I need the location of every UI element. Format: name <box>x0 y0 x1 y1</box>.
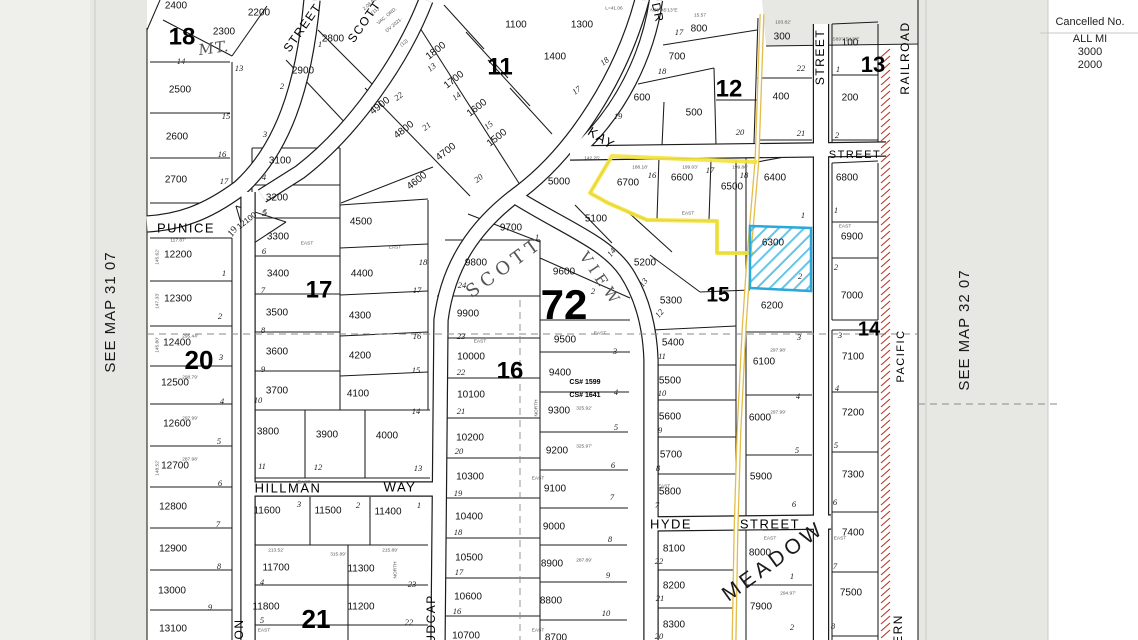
railroad-hatch-tick <box>881 581 890 589</box>
railroad-hatch-tick <box>881 399 890 407</box>
lot-number-label: 22 <box>655 556 664 566</box>
railroad-hatch-tick <box>881 273 890 281</box>
dimension-label: EAST <box>298 479 311 485</box>
railroad-hatch-tick <box>881 287 890 295</box>
lot-number-label: 13 <box>414 463 423 473</box>
parcel-number-label: 11300 <box>347 564 375 575</box>
parcel-number-label: 6900 <box>841 232 864 243</box>
street-name-label: STREET <box>829 149 881 161</box>
dimension-label: 147.33' <box>154 293 160 309</box>
dimension-label: 193.82' <box>775 19 791 25</box>
parcel-line <box>657 157 659 219</box>
dimension-label: S89°15'12"E <box>833 36 860 42</box>
parcel-number-label: 12300 <box>164 294 192 305</box>
dimension-label: 188.18' <box>632 164 648 170</box>
parcel-number-label: 10700 <box>452 631 480 640</box>
parcel-number-label: 12200 <box>164 250 192 261</box>
lot-number-label: 21 <box>420 120 433 133</box>
parcel-number-label: 12400 <box>163 338 191 349</box>
parcel-number-label: 12800 <box>159 502 187 513</box>
block-number-label: 20 <box>185 345 214 375</box>
railroad-hatch-tick <box>881 476 890 484</box>
parcel-number-label: 8100 <box>663 544 686 555</box>
lot-number-label: 21 <box>656 593 665 603</box>
parcel-number-label: 3100 <box>269 156 292 167</box>
lot-number-label: 21 <box>797 128 806 138</box>
lot-number-label: 23 <box>457 331 466 341</box>
lot-number-label: 17 <box>413 285 422 295</box>
dimension-label: EAST <box>834 535 847 541</box>
railroad-hatch-tick <box>881 266 890 274</box>
railroad-hatch-tick <box>881 238 890 246</box>
block-number-label: 21 <box>302 604 331 634</box>
highlighted-parcel-6300 <box>750 226 811 291</box>
lot-number-label: 20 <box>472 171 485 185</box>
railroad-hatch-tick <box>881 343 890 351</box>
parcel-number-label: 9800 <box>465 258 488 269</box>
lot-number-label: 3 <box>296 499 301 509</box>
cancelled-line: 2000 <box>1042 59 1138 72</box>
parcel-number-label: 6200 <box>761 301 784 312</box>
lot-number-label: 14 <box>412 406 421 416</box>
parcel-number-label: 7300 <box>842 470 865 481</box>
railroad-hatch-tick <box>881 448 890 456</box>
lot-number-label: 16 <box>218 149 227 159</box>
parcel-number-label: 5400 <box>662 338 685 349</box>
railroad-hatch-tick <box>881 497 890 505</box>
dimension-label: 199.86' <box>732 164 748 170</box>
railroad-hatch-tick <box>881 350 890 358</box>
dimension-label: 287.98' <box>182 456 198 462</box>
parcel-number-label: 1100 <box>505 20 527 31</box>
parcel-number-label: 9100 <box>544 484 567 495</box>
lot-number-label: 15 <box>482 119 495 132</box>
railroad-hatch-tick <box>881 539 890 547</box>
parcel-line <box>340 244 428 248</box>
dimension-label: EAST <box>682 210 695 216</box>
railroad-hatch-tick <box>881 483 890 491</box>
dimension-label: 145.62' <box>154 249 160 265</box>
parcel-number-label: 3800 <box>257 427 280 438</box>
parcel-number-label: 7500 <box>840 588 863 599</box>
parcel-number-label: 3300 <box>267 232 290 243</box>
dimension-label: 213.52' <box>268 547 284 553</box>
dimension-label: 199.03' <box>682 164 698 170</box>
railroad-hatch-tick <box>881 364 890 372</box>
dimension-label: N89°45'13"E <box>650 7 677 13</box>
lot-number-label: 18 <box>454 527 463 537</box>
lot-number-label: 18 <box>658 66 667 76</box>
lot-number-label: 2 <box>790 622 795 632</box>
railroad-hatch-tick <box>881 504 890 512</box>
railroad-hatch-tick <box>881 630 890 638</box>
left-margin-outer <box>0 0 90 640</box>
lot-number-label: 8 <box>261 325 266 335</box>
parcel-number-label: 7000 <box>841 291 864 302</box>
dimension-label: EAST <box>532 627 545 633</box>
parcel-number-label: 5200 <box>634 258 657 269</box>
railroad-hatch-tick <box>881 462 890 470</box>
railroad-hatch-tick <box>881 301 890 309</box>
parcel-number-label: 10300 <box>456 472 484 483</box>
parcel-line <box>628 212 672 252</box>
railroad-hatch-tick <box>881 175 890 183</box>
railroad-hatch-tick <box>881 392 890 400</box>
parcel-number-label: 800 <box>691 24 708 35</box>
lot-number-label: 14 <box>450 89 463 103</box>
parcel-number-label: 1700 <box>442 69 467 92</box>
dimension-label: 142.25' <box>584 155 600 161</box>
parcel-number-label: 6000 <box>749 413 772 424</box>
parcel-number-label: 8900 <box>541 559 564 570</box>
lot-number-label: 6 <box>611 460 616 470</box>
lot-number-label: 10 <box>658 388 667 398</box>
parcel-number-label: 3400 <box>267 269 290 280</box>
parcel-number-label: 4600 <box>405 170 430 193</box>
parcel-number-label: 13000 <box>158 586 186 597</box>
railroad-hatch-tick <box>881 518 890 526</box>
lot-number-label: 9 <box>658 425 663 435</box>
survey-ref-label: CS# 1599 <box>569 379 600 386</box>
railroad-hatch-tick <box>881 161 890 169</box>
street-name-label: ERN <box>891 614 905 640</box>
parcel-number-label: 5900 <box>750 472 773 483</box>
lot-number-label: 6 <box>262 246 267 256</box>
lot-number-label: 8 <box>656 463 661 473</box>
railroad-hatch-tick <box>881 182 890 190</box>
lot-number-label: 16 <box>453 606 462 616</box>
railroad-hatch-tick <box>881 203 890 211</box>
parcel-number-label: 3900 <box>316 430 339 441</box>
see-map-left-label: SEE MAP 31 07 <box>102 227 124 397</box>
lot-number-label: 1 <box>222 268 226 278</box>
parcel-number-label: 7200 <box>842 408 865 419</box>
railroad-hatch-tick <box>881 441 890 449</box>
parcel-number-label: 1800 <box>424 40 449 63</box>
dimension-label: L=41.06 <box>605 5 623 11</box>
parcel-line <box>638 68 714 84</box>
railroad-hatch-tick <box>881 455 890 463</box>
railroad-hatch-tick <box>881 385 890 393</box>
lot-number-label: 22 <box>457 367 466 377</box>
lot-number-label: 7 <box>833 561 838 571</box>
lot-number-label: 1 <box>834 205 838 215</box>
dimension-label: 294.97' <box>780 590 796 596</box>
railroad-hatch-tick <box>881 119 890 127</box>
block-number-label: 72 <box>541 281 588 328</box>
parcel-number-label: 2200 <box>248 8 271 19</box>
parcel-number-label: 2500 <box>169 85 192 96</box>
parcel-number-label: 8000 <box>749 548 772 559</box>
railroad-hatch-tick <box>881 196 890 204</box>
lot-number-label: 5 <box>795 445 799 455</box>
railroad-hatch-tick <box>881 434 890 442</box>
survey-ref-label: CS# 1641 <box>569 392 600 399</box>
street-name-label: PUNICE <box>157 220 215 235</box>
lot-number-label: 5 <box>260 615 264 625</box>
railroad-hatch-tick <box>881 616 890 624</box>
parcel-number-label: 7900 <box>750 602 773 613</box>
lot-number-label: 20 <box>736 127 745 137</box>
lot-number-label: 5 <box>614 422 618 432</box>
parcel-number-label: 2900 <box>292 66 315 77</box>
parcel-line <box>652 326 736 330</box>
railroad-hatch-tick <box>881 112 890 120</box>
lot-number-label: 5 <box>262 208 266 218</box>
lot-number-label: 1 <box>318 39 322 49</box>
lot-number-label: 24 <box>458 280 467 290</box>
railroad-hatch-tick <box>881 231 890 239</box>
lot-number-label: 2 <box>356 500 361 510</box>
parcel-number-label: 11500 <box>314 506 342 517</box>
railroad-hatch-tick <box>881 525 890 533</box>
street-name-label: MT. <box>196 37 230 59</box>
parcel-number-label: 6700 <box>617 178 640 189</box>
parcel-number-label: 11700 <box>262 563 290 574</box>
parcel-number-label: 4700 <box>434 141 459 164</box>
parcel-number-label: 500 <box>686 108 703 119</box>
dimension-label: NORTH <box>392 561 398 579</box>
lot-number-label: 18 <box>419 257 428 267</box>
lot-number-label: 18 <box>740 170 749 180</box>
railroad-hatch-tick <box>881 91 890 99</box>
lot-number-label: 2 <box>834 262 839 272</box>
right-margin <box>918 0 1048 640</box>
dimension-label: 297.99' <box>182 415 198 421</box>
lot-number-label: 10 <box>254 395 263 405</box>
block-number-label: 15 <box>706 284 730 307</box>
railroad-hatch-tick <box>881 595 890 603</box>
parcel-number-label: 1600 <box>465 97 490 120</box>
lot-number-label: 8 <box>608 534 613 544</box>
railroad-hatch-tick <box>881 84 890 92</box>
dimension-label: 145.80' <box>154 337 160 353</box>
parcel-number-label: 6800 <box>836 173 859 184</box>
lot-number-label: 11 <box>258 461 266 471</box>
lot-number-label: 12 <box>653 306 667 320</box>
lot-number-label: 22 <box>797 63 806 73</box>
railroad-hatch-tick <box>881 224 890 232</box>
lot-number-label: 6 <box>833 497 838 507</box>
lot-number-label: 1 <box>790 571 794 581</box>
highlighted-parcels-outline <box>590 156 757 253</box>
lot-number-label: 6 <box>792 499 797 509</box>
street-name-label: HILLMAN <box>255 480 322 495</box>
parcel-number-label: 8700 <box>545 633 568 640</box>
railroad-hatch-tick <box>881 315 890 323</box>
railroad-hatch-tick <box>881 609 890 617</box>
railroad-hatch-tick <box>881 329 890 337</box>
lot-number-label: 2 <box>835 130 840 140</box>
lot-number-label: 21 <box>457 406 466 416</box>
lot-number-label: 5 <box>217 436 221 446</box>
parcel-number-label: 2300 <box>213 27 236 38</box>
lot-number-label: 17 <box>675 27 684 37</box>
parcel-number-label: 10400 <box>455 512 483 523</box>
parcel-number-label: 10200 <box>456 433 484 444</box>
dimension-label: 295.44' <box>182 333 198 339</box>
dimension-label: 287.89' <box>576 557 592 563</box>
parcel-number-label: 9700 <box>500 223 523 234</box>
block-number-label: 18 <box>169 23 196 50</box>
parcel-line <box>662 102 664 146</box>
block-number-label: 11 <box>487 53 512 80</box>
lot-number-label: 1 <box>417 500 421 510</box>
dimension-label: EAST <box>658 483 671 489</box>
parcel-number-label: 8800 <box>540 596 563 607</box>
parcel-number-label: 5000 <box>548 177 571 188</box>
parcel-number-label: 3600 <box>266 347 289 358</box>
parcel-number-label: 6600 <box>671 173 694 184</box>
parcel-line <box>832 161 878 163</box>
railroad-hatch-tick <box>881 322 890 330</box>
railroad-hatch-tick <box>881 308 890 316</box>
lot-number-label: 3 <box>262 129 267 139</box>
parcel-number-label: 10000 <box>457 352 485 363</box>
lot-number-label: 4 <box>835 383 840 393</box>
cancelled-numbers-box: Cancelled No. ALL MI 3000 2000 <box>1042 16 1138 72</box>
railroad-hatch-tick <box>881 490 890 498</box>
parcel-number-label: 1400 <box>544 52 567 63</box>
dimension-label: 325.92' <box>576 405 592 411</box>
dimension-label: 298.79' <box>182 374 198 380</box>
parcel-number-label: 8300 <box>663 620 686 631</box>
parcel-number-label: 6100 <box>753 357 776 368</box>
parcel-number-label: 5600 <box>659 412 682 423</box>
lot-number-label: 23 <box>408 579 417 589</box>
parcel-number-label: 6500 <box>721 182 744 193</box>
lot-number-label: 2 <box>218 311 223 321</box>
railroad-hatch-tick <box>881 588 890 596</box>
parcel-number-label: 5300 <box>660 296 683 307</box>
parcel-number-label: 4100 <box>347 389 370 400</box>
lot-number-label: 1 <box>801 210 805 220</box>
parcel-number-label: 6400 <box>764 173 787 184</box>
railroad-hatch-tick <box>881 77 890 85</box>
parcel-number-label: 10600 <box>454 592 482 603</box>
railroad-hatch-tick <box>881 126 890 134</box>
railroad-hatch-tick <box>881 336 890 344</box>
parcel-number-label: 4000 <box>376 431 399 442</box>
dimension-label: EAST <box>764 535 777 541</box>
street-name-label: PACIFIC <box>895 329 907 382</box>
railroad-hatch-tick <box>881 294 890 302</box>
dimension-label: EAST <box>594 330 607 336</box>
see-map-right-label: SEE MAP 32 07 <box>956 245 978 415</box>
lot-number-label: 19 <box>454 488 463 498</box>
dimension-label: 297.98' <box>770 347 786 353</box>
railroad-hatch-tick <box>881 245 890 253</box>
railroad-hatch-tick <box>881 574 890 582</box>
railroad-hatch-tick <box>881 420 890 428</box>
parcel-number-label: 3200 <box>266 193 289 204</box>
railroad-hatch-tick <box>881 567 890 575</box>
dimension-label: 148.52' <box>154 460 160 476</box>
lot-number-label: 13 <box>425 61 438 74</box>
lot-number-label: 22 <box>392 89 405 103</box>
parcel-number-label: 4200 <box>349 351 372 362</box>
railroad-hatch-tick <box>881 560 890 568</box>
lot-number-label: 7 <box>261 285 266 295</box>
railroad-hatch-tick <box>881 210 890 218</box>
lot-number-label: 16 <box>648 170 657 180</box>
lot-number-label: 3 <box>218 352 223 362</box>
railroad-hatch-tick <box>881 406 890 414</box>
dimension-label: 15.57 <box>694 12 706 18</box>
lot-number-label: 19 <box>614 111 623 121</box>
street-name-label: STREET <box>813 29 827 85</box>
parcel-number-label: 9600 <box>553 267 576 278</box>
block-number-label: 12 <box>716 75 743 102</box>
lot-number-label: 3 <box>612 346 617 356</box>
railroad-hatch-tick <box>881 469 890 477</box>
parcel-number-label: 5500 <box>659 376 682 387</box>
parcel-number-label: 11200 <box>347 602 375 613</box>
dimension-label: EAST <box>301 240 314 246</box>
parcel-number-label: 9400 <box>549 368 572 379</box>
railroad-hatch-tick <box>881 427 890 435</box>
lot-number-label: 12 <box>314 462 323 472</box>
parcel-number-label: 4500 <box>350 217 373 228</box>
parcel-line <box>444 5 484 49</box>
lot-number-label: 3 <box>796 332 801 342</box>
parcel-number-label: 6300 <box>762 238 785 249</box>
street-name-label: STREET <box>740 516 800 531</box>
cancelled-line: 3000 <box>1042 46 1138 59</box>
lot-number-label: 17 <box>455 567 464 577</box>
parcel-number-label: 12700 <box>161 461 189 472</box>
lot-number-label: 7 <box>216 519 221 529</box>
dimension-label: EAST <box>474 338 487 344</box>
lot-number-label: 2 <box>280 81 285 91</box>
parcel-number-label: 9000 <box>543 522 566 533</box>
cancelled-line: ALL MI <box>1042 33 1138 46</box>
parcel-number-label: 3500 <box>266 308 289 319</box>
lot-number-label: 10 <box>602 608 611 618</box>
parcel-number-label: 2600 <box>166 132 189 143</box>
parcel-number-label: 10500 <box>455 553 483 564</box>
lot-number-label: 16 <box>413 331 422 341</box>
dimension-label: EAST <box>532 475 545 481</box>
plat-map-page: MT.SCOTTSTREETDRKAYSCOTTVIEWPUNICEHILLMA… <box>0 0 1138 640</box>
cancelled-title: Cancelled No. <box>1042 16 1138 29</box>
parcel-number-label: 13100 <box>159 624 187 635</box>
street-name-label: HYDE <box>650 516 692 531</box>
lot-number-label: 17 <box>570 83 583 97</box>
railroad-hatch-tick <box>881 357 890 365</box>
parcel-number-label: 2400 <box>165 1 188 12</box>
parcel-number-label: 9900 <box>457 309 480 320</box>
lot-number-label: 3 <box>837 330 842 340</box>
lot-number-label: 1 <box>535 232 539 242</box>
lot-number-label: 13 <box>235 63 244 73</box>
parcel-number-label: 9200 <box>546 446 569 457</box>
lot-number-label: 15 <box>222 111 231 121</box>
railroad-hatch-tick <box>881 252 890 260</box>
parcel-number-label: 600 <box>634 93 651 104</box>
dimension-label: 297.99' <box>770 409 786 415</box>
lot-number-label: 9 <box>261 364 266 374</box>
lot-number-label: 11 <box>658 351 666 361</box>
parcel-number-label: 5700 <box>660 450 683 461</box>
parcel-number-label: 11400 <box>374 507 402 518</box>
parcel-number-label: 11600 <box>253 506 281 517</box>
railroad-hatch-tick <box>881 189 890 197</box>
parcel-line <box>147 0 160 30</box>
parcel-number-label: 12900 <box>159 544 187 555</box>
railroad-hatch-tick <box>881 602 890 610</box>
parcel-number-label: 4300 <box>349 311 372 322</box>
